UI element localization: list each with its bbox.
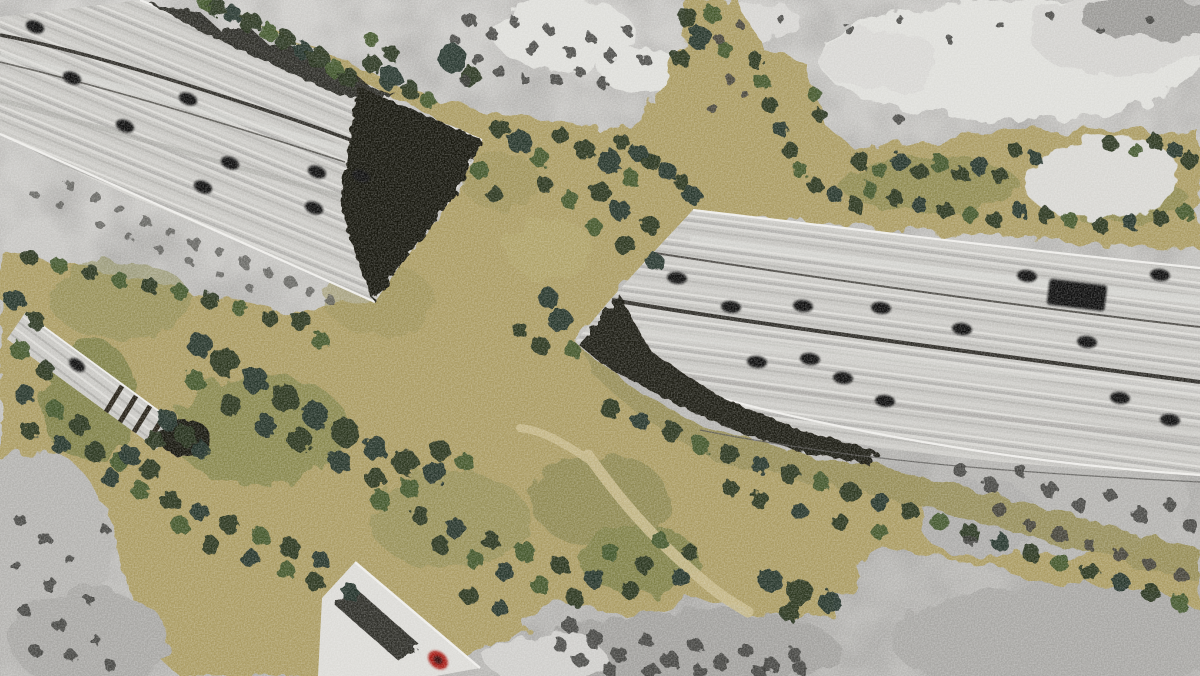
wildlife-overpass-aerial-image: [0, 0, 1200, 676]
aerial-photo-stage: [0, 0, 1200, 676]
photo-grain-overlay: [0, 0, 1200, 676]
